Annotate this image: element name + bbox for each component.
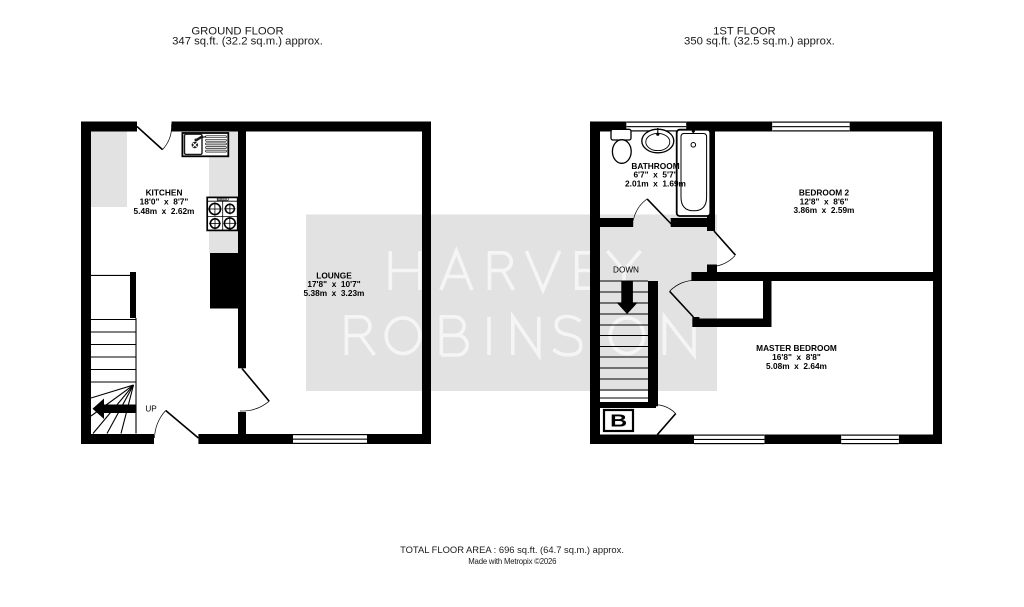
- svg-text:2.01m x 1.69m: 2.01m x 1.69m: [625, 178, 686, 188]
- svg-text:Made with Metropix ©2026: Made with Metropix ©2026: [468, 557, 556, 566]
- svg-text:TOTAL FLOOR AREA : 696 sq.ft.: TOTAL FLOOR AREA : 696 sq.ft. (64.7 sq.m…: [400, 544, 624, 555]
- svg-text:B: B: [610, 411, 627, 431]
- svg-text:5.38m x 3.23m: 5.38m x 3.23m: [304, 288, 365, 298]
- svg-text:347 sq.ft. (32.2 sq.m.) approx: 347 sq.ft. (32.2 sq.m.) approx.: [172, 36, 323, 48]
- svg-text:UP: UP: [145, 404, 157, 413]
- svg-text:350 sq.ft. (32.5 sq.m.) approx: 350 sq.ft. (32.5 sq.m.) approx.: [684, 36, 835, 48]
- svg-text:5.48m x 2.62m: 5.48m x 2.62m: [134, 206, 195, 216]
- svg-text:5.08m x 2.64m: 5.08m x 2.64m: [766, 361, 827, 371]
- svg-text:3.86m x 2.59m: 3.86m x 2.59m: [794, 205, 855, 215]
- svg-text:DOWN: DOWN: [613, 265, 639, 274]
